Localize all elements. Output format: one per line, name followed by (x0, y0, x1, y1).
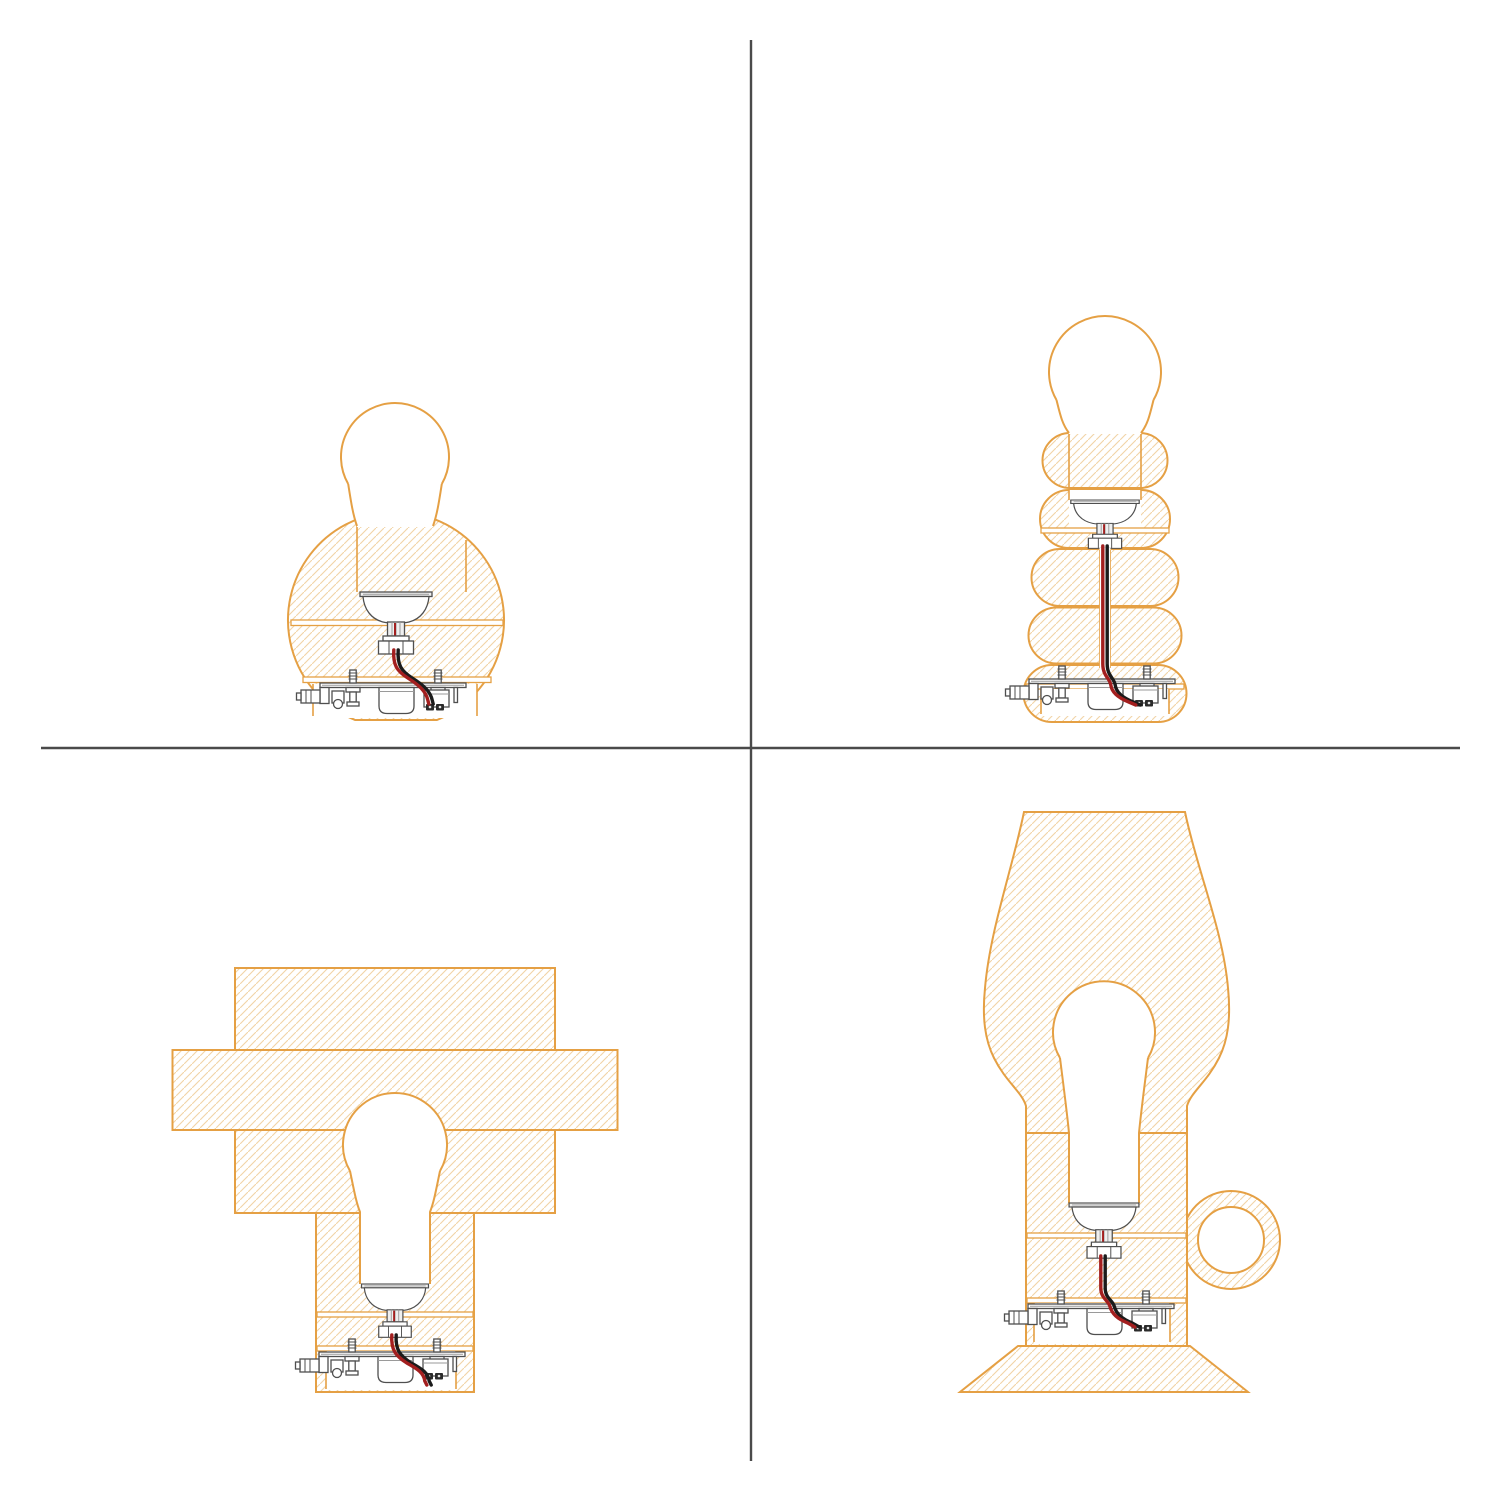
bulb-fill (1049, 316, 1161, 434)
slab-top (235, 968, 555, 1050)
quadrant-slab-cross-lamp (173, 968, 618, 1392)
base-flare (960, 1346, 1248, 1392)
quadrant-shade-handle-lamp (960, 812, 1280, 1392)
quadrant-sphere-lamp (288, 403, 504, 720)
pill-segment-1 (1043, 433, 1168, 488)
seam-board-lower (303, 677, 491, 683)
bulb-fill (341, 403, 449, 527)
quadrant-stacked-bubble-lamp (1006, 316, 1187, 722)
ring-handle-hole (1198, 1207, 1264, 1273)
technical-drawing-canvas (0, 0, 1500, 1500)
